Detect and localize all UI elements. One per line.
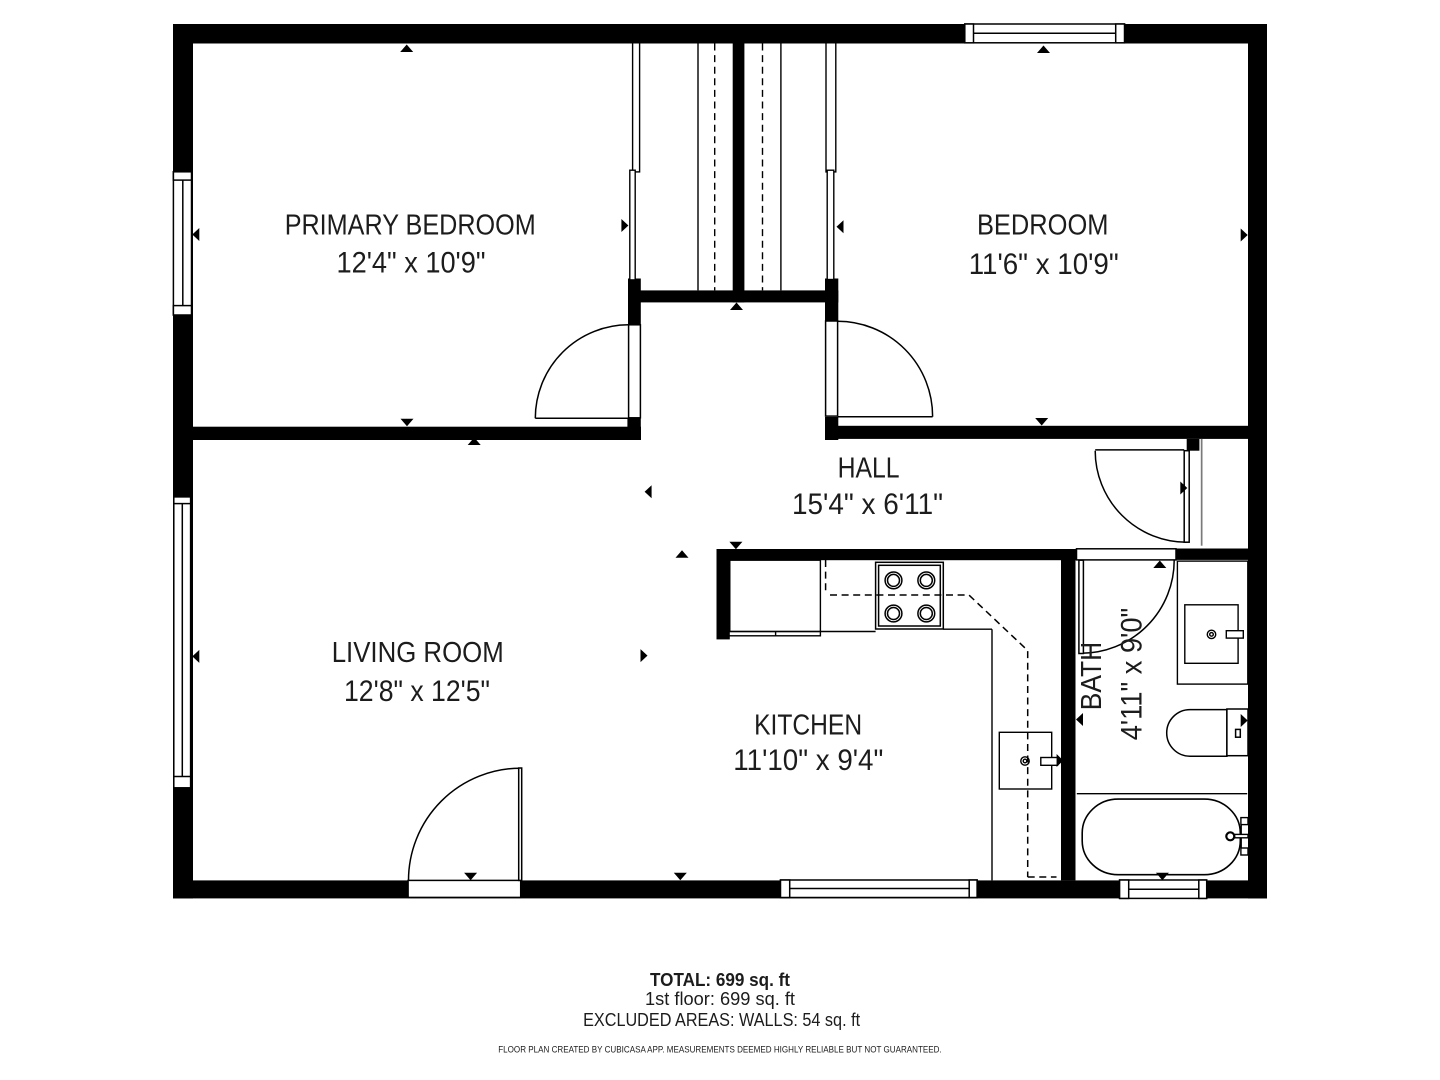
svg-text:15'4" x 6'11": 15'4" x 6'11" bbox=[792, 488, 943, 521]
svg-text:EXCLUDED AREAS: WALLS: 54 sq.: EXCLUDED AREAS: WALLS: 54 sq. ft bbox=[583, 1009, 860, 1030]
svg-text:FLOOR PLAN CREATED BY CUBICASA: FLOOR PLAN CREATED BY CUBICASA APP. MEAS… bbox=[498, 1045, 942, 1055]
svg-text:BATH: BATH bbox=[1076, 642, 1108, 711]
svg-text:12'4" x 10'9": 12'4" x 10'9" bbox=[337, 247, 486, 280]
svg-text:TOTAL: 699 sq. ft: TOTAL: 699 sq. ft bbox=[650, 969, 790, 990]
svg-text:4'11" x 9'0": 4'11" x 9'0" bbox=[1116, 608, 1149, 741]
svg-text:12'8" x 12'5": 12'8" x 12'5" bbox=[344, 675, 490, 708]
svg-text:11'10" x 9'4": 11'10" x 9'4" bbox=[733, 744, 883, 777]
svg-text:BEDROOM: BEDROOM bbox=[977, 210, 1109, 242]
svg-text:HALL: HALL bbox=[838, 452, 900, 484]
svg-text:1st floor: 699 sq. ft: 1st floor: 699 sq. ft bbox=[645, 988, 795, 1009]
svg-text:PRIMARY BEDROOM: PRIMARY BEDROOM bbox=[285, 209, 536, 241]
svg-text:LIVING ROOM: LIVING ROOM bbox=[332, 637, 504, 669]
svg-text:11'6" x 10'9": 11'6" x 10'9" bbox=[969, 248, 1119, 281]
svg-text:KITCHEN: KITCHEN bbox=[754, 709, 862, 741]
